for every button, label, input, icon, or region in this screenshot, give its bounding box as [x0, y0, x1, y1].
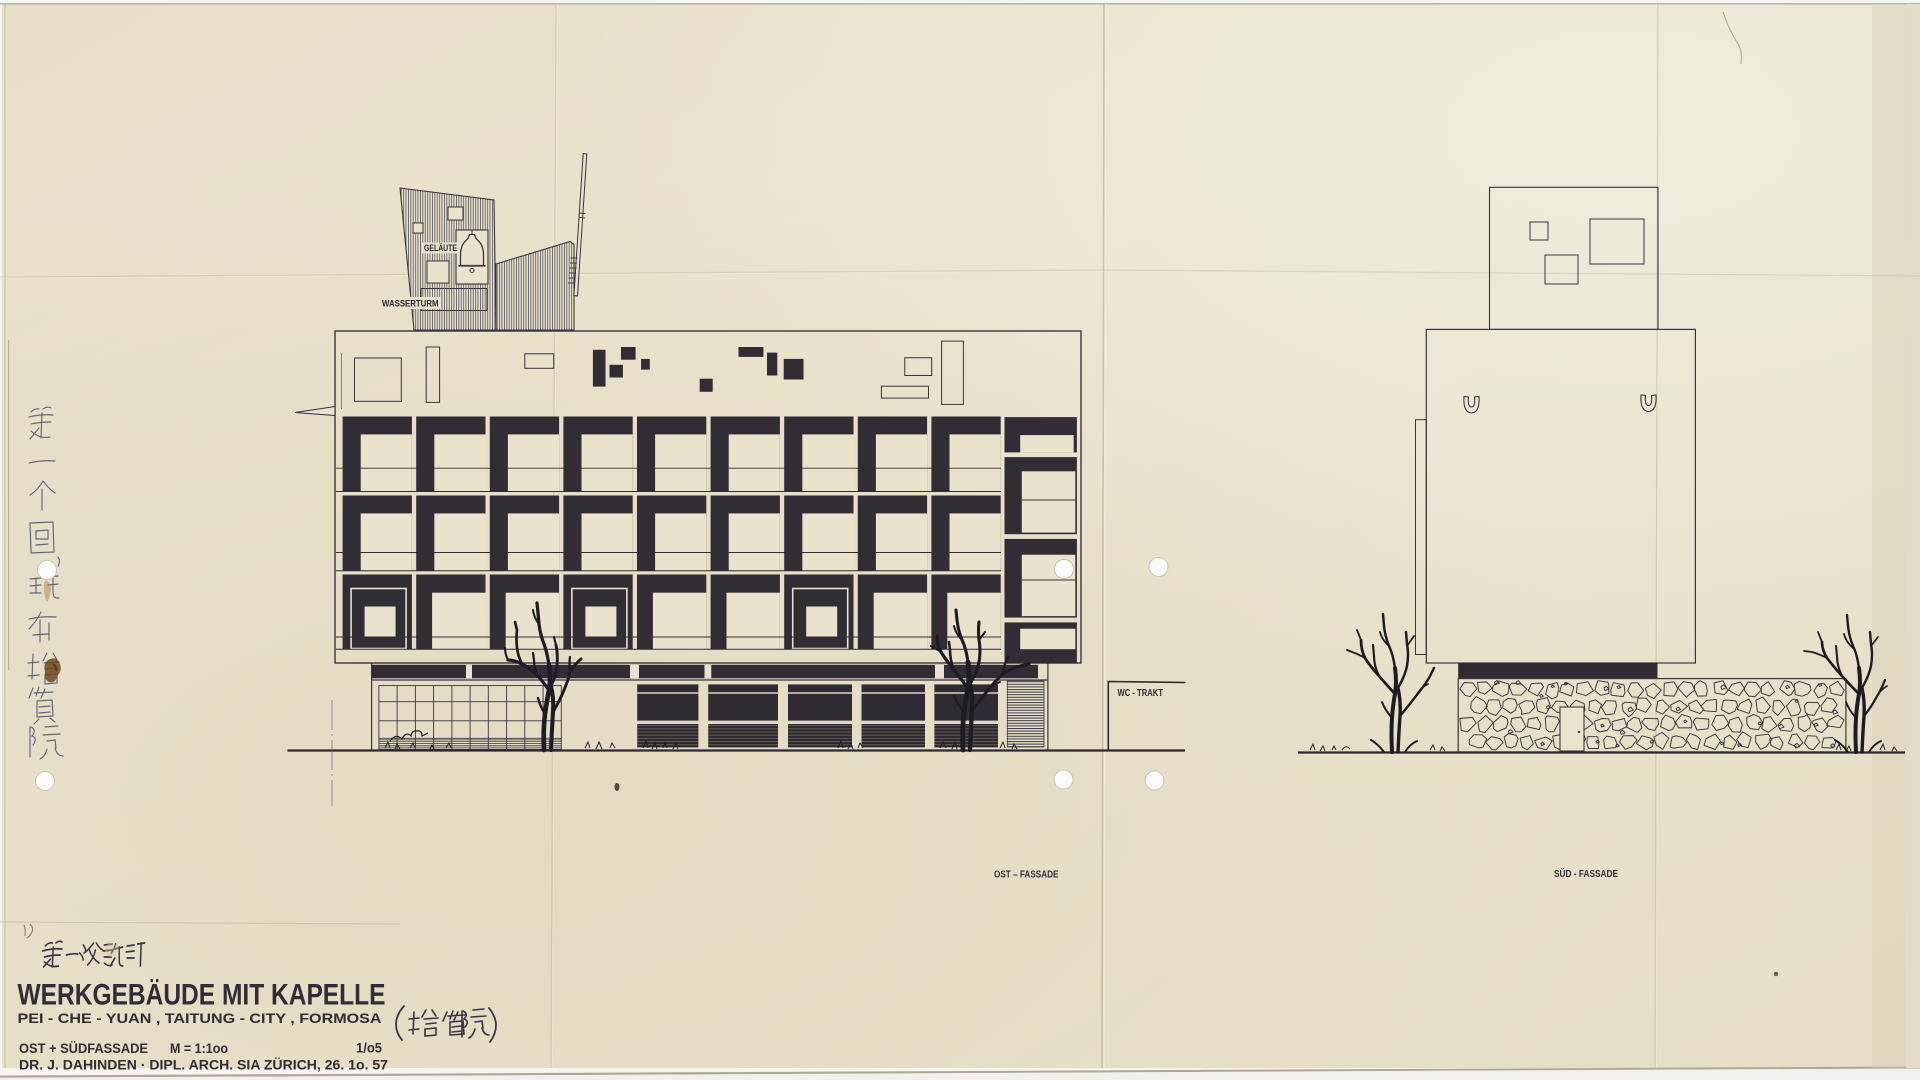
svg-text:WERKGEBÄUDE MIT KAPELLE: WERKGEBÄUDE MIT KAPELLE: [18, 979, 386, 1012]
svg-text:OST – FASSADE: OST – FASSADE: [994, 869, 1059, 881]
svg-text:PEI - CHE - YUAN , TAITU: PEI - CHE - YUAN , TAITUNG - CITY , FORM…: [18, 1010, 382, 1026]
svg-text:DR. J. DAHINDEN · DIPL. ARCH: DR. J. DAHINDEN · DIPL. ARCH. SIA ZÜRICH…: [19, 1058, 388, 1073]
svg-text:1/o5: 1/o5: [356, 1041, 382, 1056]
svg-text:OST + SÜDFASSADE: OST + SÜDFASSADE: [19, 1041, 148, 1056]
svg-text:WC - TRAKT: WC - TRAKT: [1118, 688, 1164, 699]
svg-text:GELÄUTE: GELÄUTE: [424, 243, 457, 253]
svg-text:SÜD - FASSADE: SÜD - FASSADE: [1554, 867, 1618, 880]
svg-text:WASSERTURM: WASSERTURM: [382, 299, 439, 309]
svg-text:M = 1:1oo: M = 1:1oo: [170, 1041, 228, 1056]
